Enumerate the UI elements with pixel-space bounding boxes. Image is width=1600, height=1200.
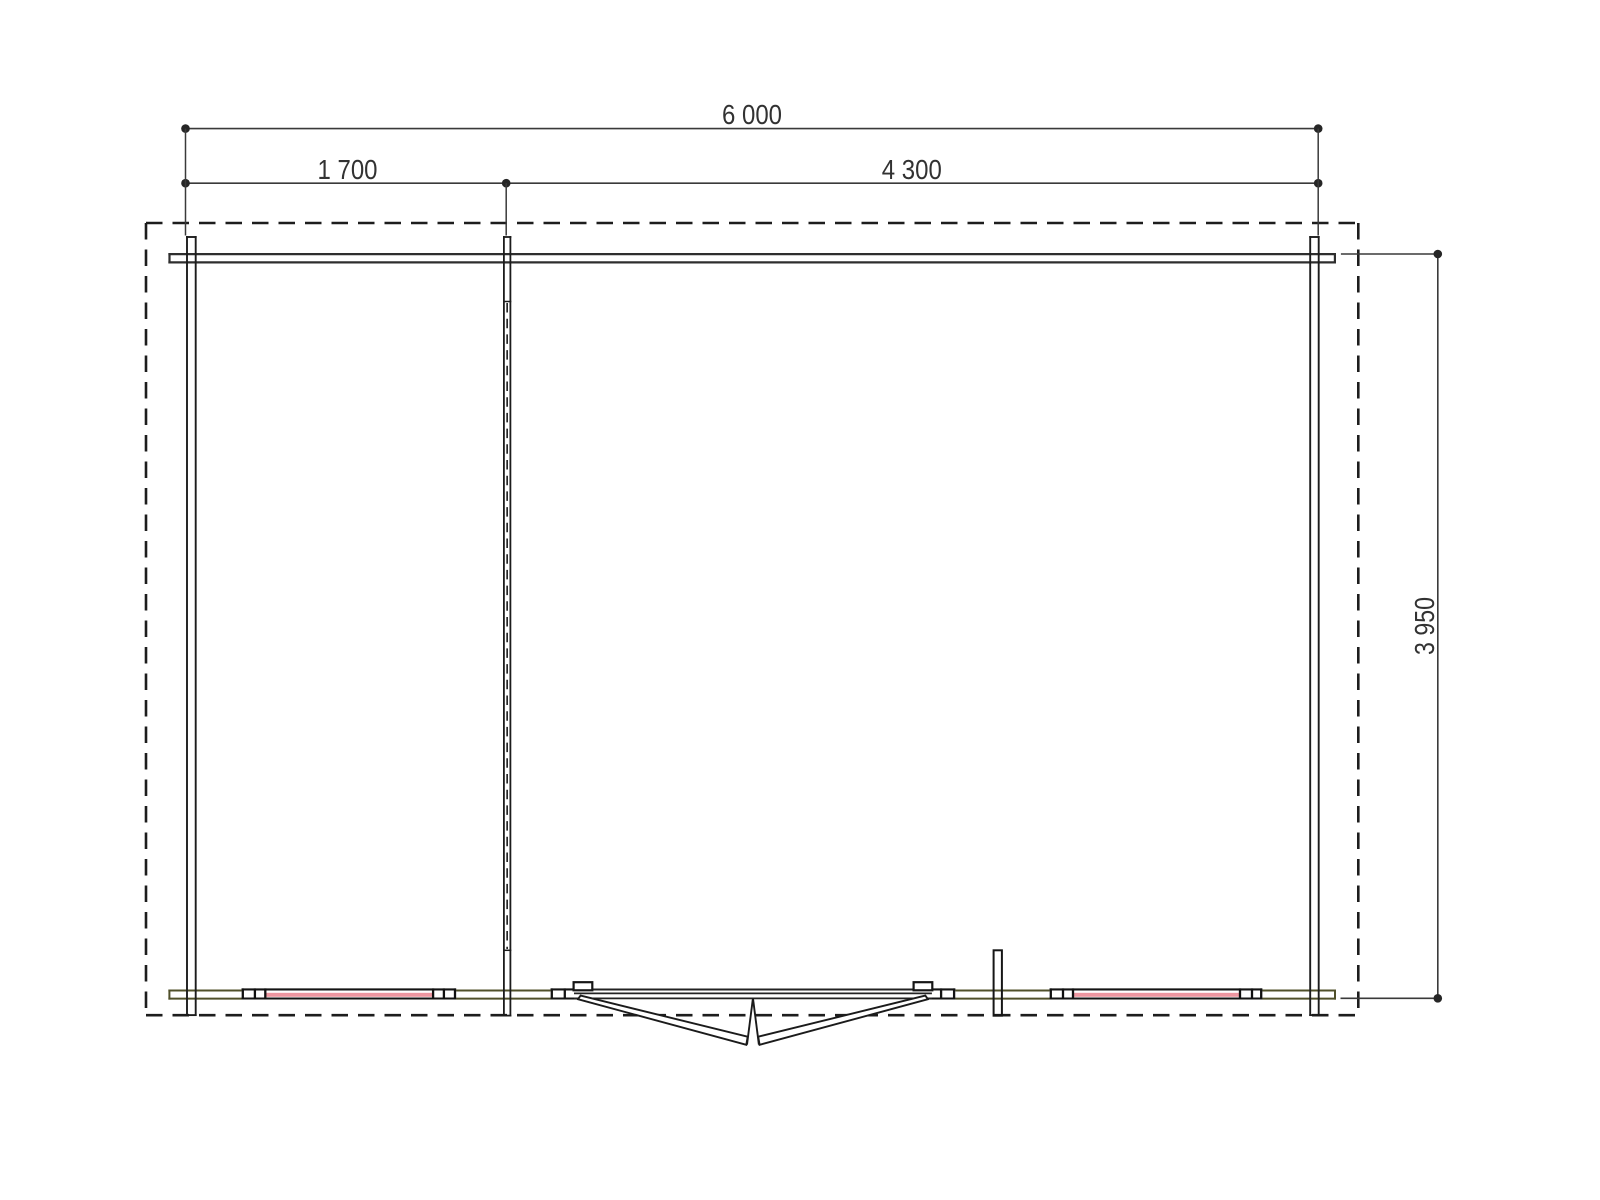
svg-text:4 300: 4 300 bbox=[882, 154, 942, 185]
svg-text:1 700: 1 700 bbox=[318, 154, 378, 185]
svg-text:6 000: 6 000 bbox=[722, 99, 782, 130]
svg-text:3 950: 3 950 bbox=[1409, 597, 1440, 655]
